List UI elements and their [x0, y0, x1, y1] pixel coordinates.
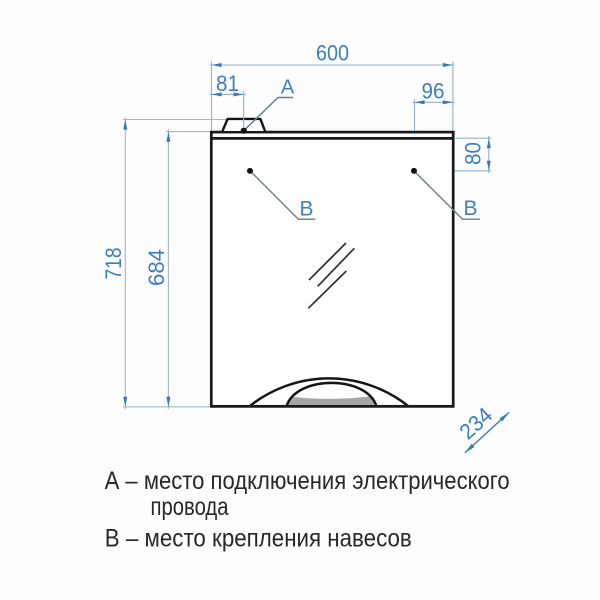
svg-text:A: A	[281, 76, 295, 98]
svg-text:96: 96	[422, 79, 445, 104]
svg-text:718: 718	[101, 248, 126, 280]
svg-text:B: B	[463, 197, 477, 220]
svg-text:B: B	[299, 198, 313, 221]
svg-text:80: 80	[460, 142, 485, 165]
svg-text:провода: провода	[151, 493, 229, 521]
svg-text:684: 684	[144, 249, 169, 286]
svg-text:600: 600	[316, 41, 349, 66]
svg-text:А – место подключения электрич: А – место подключения электрического	[105, 467, 510, 495]
svg-text:81: 81	[216, 71, 239, 96]
svg-text:В – место крепления навесов: В – место крепления навесов	[105, 525, 412, 553]
svg-text:234: 234	[455, 402, 498, 444]
